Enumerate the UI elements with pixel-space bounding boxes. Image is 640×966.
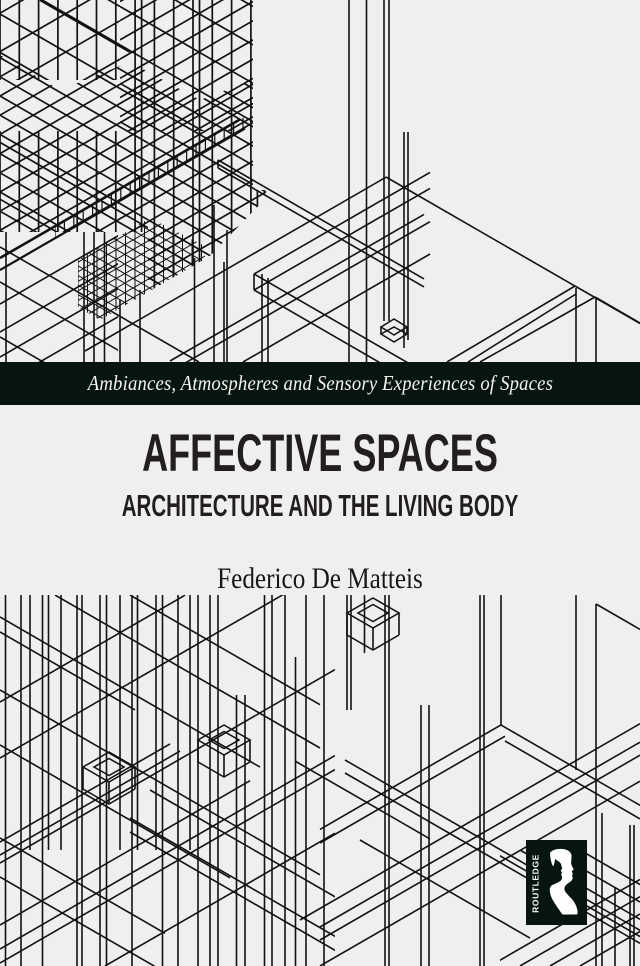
svg-text:ROUTLEDGE: ROUTLEDGE [531, 854, 541, 913]
